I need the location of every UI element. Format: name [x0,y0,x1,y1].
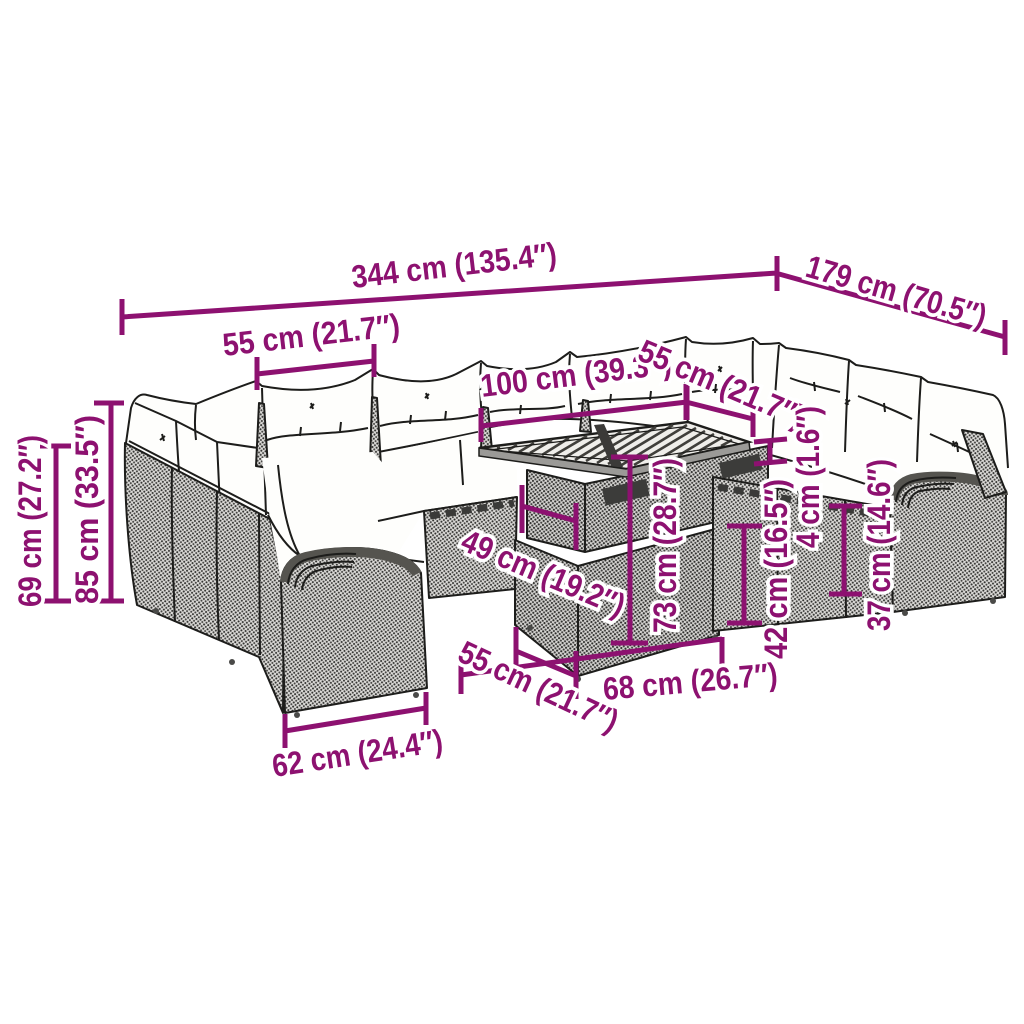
svg-text:37 cm (14.6″): 37 cm (14.6″) [861,459,897,631]
svg-text:42 cm (16.5″): 42 cm (16.5″) [758,479,794,659]
svg-text:73 cm (28.7″): 73 cm (28.7″) [647,458,683,633]
svg-text:4 cm (1.6″): 4 cm (1.6″) [790,406,826,548]
svg-text:85 cm (33.5″): 85 cm (33.5″) [69,415,105,604]
svg-text:69 cm (27.2″): 69 cm (27.2″) [12,435,48,607]
